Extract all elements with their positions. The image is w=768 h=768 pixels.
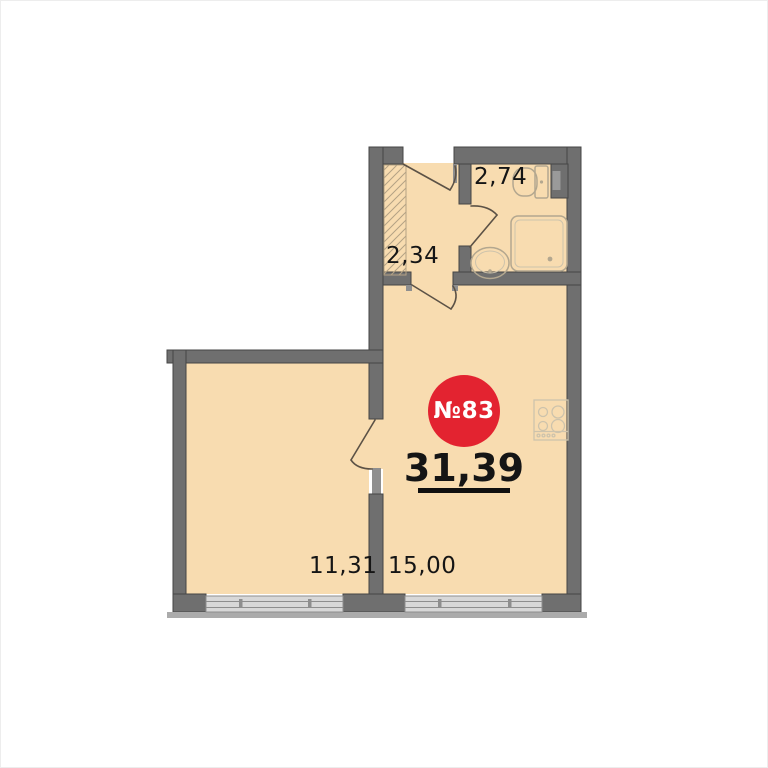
window-mullion <box>308 599 312 607</box>
wall-bottom-left-block <box>173 594 206 612</box>
total-area-value: 31,39 <box>401 448 527 488</box>
door-jamb-strip <box>372 468 381 494</box>
wall-bottom-right-block <box>542 594 581 612</box>
unit-number-text: №83 <box>433 398 494 424</box>
wall-room-left <box>173 350 186 612</box>
door-jamb-cap-left <box>406 285 412 291</box>
toilet-button <box>540 180 543 183</box>
wall-interior-upper <box>369 363 383 419</box>
window-mullion <box>508 599 512 607</box>
unit-number-badge: №83 <box>428 375 500 447</box>
area-label-hallway: 2,34 <box>386 243 439 270</box>
window-mullion <box>438 599 442 607</box>
shower-drain <box>548 257 553 262</box>
floorplan-canvas: 2,74 2,34 11,31 15,00 №83 31,39 <box>0 0 768 768</box>
wall-top-right <box>454 147 581 164</box>
duct-icon <box>551 164 568 198</box>
total-area-underline <box>418 488 510 493</box>
wall-bottom-middle-block <box>343 594 405 612</box>
wall-right <box>567 147 581 612</box>
area-label-kitchen-living: 15,00 <box>388 553 456 580</box>
floorplan-drawing <box>1 1 768 768</box>
window-sill-strip <box>167 612 587 618</box>
area-label-bathroom: 2,74 <box>474 164 527 191</box>
wall-room-top <box>167 350 383 363</box>
area-label-room: 11,31 <box>309 553 377 580</box>
window-band <box>206 596 343 612</box>
window-icon-left <box>206 596 343 612</box>
wall-bath-divider-upper <box>459 164 471 204</box>
window-mullion <box>239 599 243 607</box>
wall-left-upper <box>369 147 383 363</box>
window-icon-right <box>405 596 542 612</box>
window-band <box>405 596 542 612</box>
duct-inner <box>553 171 561 190</box>
wall-bath-bottom <box>453 272 581 285</box>
sink-drain <box>488 269 492 273</box>
